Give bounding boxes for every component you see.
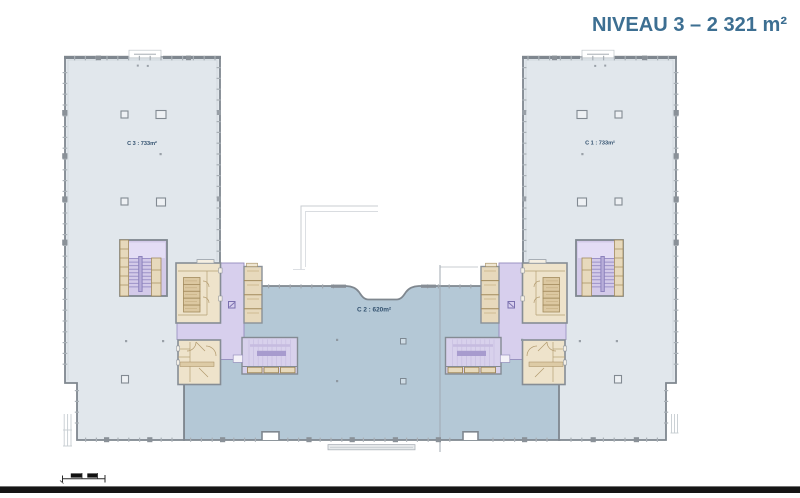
svg-text:C 1 : 733m²: C 1 : 733m² bbox=[585, 139, 615, 146]
svg-text:NIVEAU 3 – 2 321 m²: NIVEAU 3 – 2 321 m² bbox=[592, 13, 787, 36]
svg-text:C 3 : 733m²: C 3 : 733m² bbox=[127, 140, 157, 147]
svg-text:C 2 : 620m²: C 2 : 620m² bbox=[357, 306, 391, 313]
